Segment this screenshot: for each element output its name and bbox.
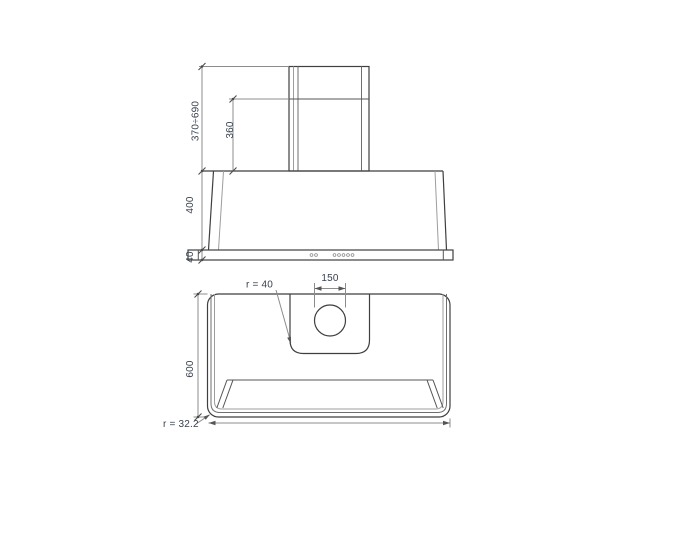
technical-drawing-page: 370÷690 360 400 40 xyxy=(0,0,686,553)
depth-dimension: 600 xyxy=(185,291,208,421)
control-buttons-icon xyxy=(310,254,354,257)
duct-recess-outline xyxy=(290,294,370,354)
dim-label-chimney-section-height: 360 xyxy=(225,121,236,139)
inner-radius-callout: r = 40 xyxy=(246,280,291,345)
width-dimension xyxy=(209,419,451,428)
outlet-hole xyxy=(315,305,346,336)
dim-label-outlet-diameter: 150 xyxy=(321,273,339,284)
top-view: 150 r = 40 600 xyxy=(163,273,450,430)
plan-outline xyxy=(208,294,451,417)
chimney-rect xyxy=(289,67,369,172)
front-view: 370÷690 360 400 40 xyxy=(185,63,453,264)
front-view-dimensions: 370÷690 360 400 40 xyxy=(185,63,237,264)
chimney-outline xyxy=(289,67,369,172)
base-band xyxy=(188,250,453,260)
dim-label-canopy-height: 400 xyxy=(185,196,196,214)
outlet-dimension: 150 xyxy=(315,273,346,308)
hood-dimension-drawing: 370÷690 360 400 40 xyxy=(0,0,686,553)
dim-label-chimney-height-range: 370÷690 xyxy=(191,101,202,141)
plan-bevel xyxy=(217,380,443,408)
dim-label-outer-corner-radius: r = 32.2 xyxy=(163,419,199,430)
dim-label-inner-corner-radius: r = 40 xyxy=(246,280,273,291)
canopy-outline xyxy=(202,171,447,250)
dim-label-base-band-height: 40 xyxy=(185,251,196,263)
dim-label-depth: 600 xyxy=(185,360,196,378)
